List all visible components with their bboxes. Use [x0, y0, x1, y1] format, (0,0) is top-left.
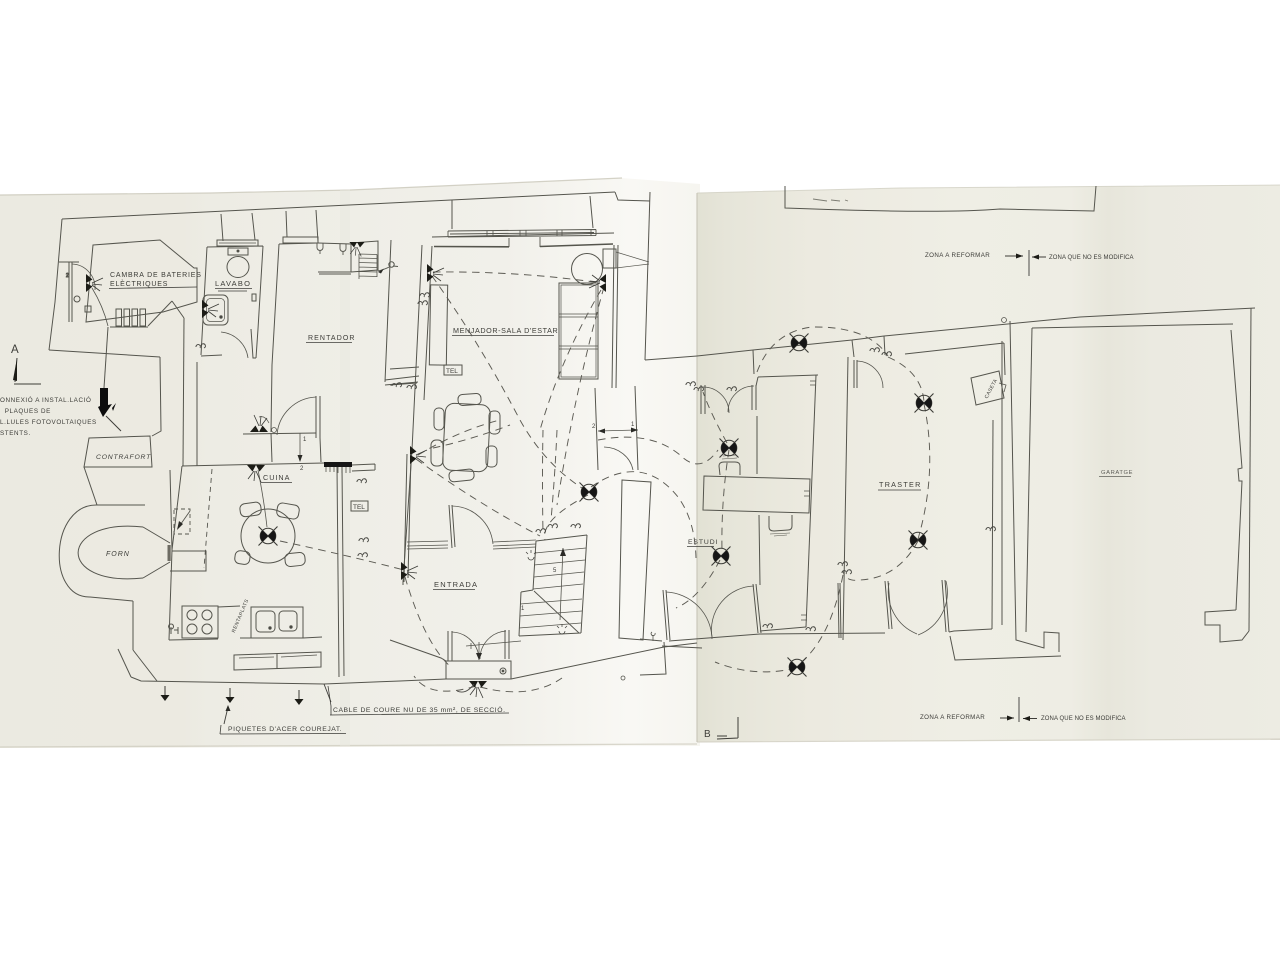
svg-text:ZONA QUE NO ES MODIFICA: ZONA QUE NO ES MODIFICA: [1041, 716, 1126, 722]
svg-text:CUINA: CUINA: [263, 473, 290, 482]
svg-text:GARATGE: GARATGE: [1101, 470, 1133, 476]
svg-text:A: A: [11, 344, 20, 356]
svg-text:ZONA A REFORMAR: ZONA A REFORMAR: [920, 714, 985, 721]
svg-text:PLAQUES DE: PLAQUES DE: [0, 408, 51, 415]
svg-text:PIQUETES D'ACER COUREJAT.: PIQUETES D'ACER COUREJAT.: [228, 726, 342, 733]
svg-text:TRASTER: TRASTER: [879, 480, 922, 489]
svg-text:B: B: [704, 729, 711, 740]
svg-text:CAMBRA DE BATERIES: CAMBRA DE BATERIES: [110, 272, 202, 279]
svg-text:LAVABO: LAVABO: [215, 279, 251, 288]
svg-text:ONNEXIÓ A INSTAL.LACIÓ: ONNEXIÓ A INSTAL.LACIÓ: [0, 395, 91, 404]
svg-text:ESTUDI: ESTUDI: [688, 539, 718, 546]
svg-text:RENTADOR: RENTADOR: [308, 335, 356, 342]
svg-text:2: 2: [66, 273, 69, 279]
svg-text:FORN: FORN: [106, 551, 130, 558]
svg-text:TEL: TEL: [353, 504, 365, 511]
svg-text:ZONA A REFORMAR: ZONA A REFORMAR: [925, 252, 990, 259]
svg-text:L.LULES FOTOVOLTAIQUES: L.LULES FOTOVOLTAIQUES: [0, 419, 97, 426]
svg-text:ELÈCTRIQUES: ELÈCTRIQUES: [110, 279, 168, 288]
svg-text:CABLE DE COURE NU DE 35 mm², D: CABLE DE COURE NU DE 35 mm², DE SECCIÓ.: [333, 705, 506, 714]
svg-text:STENTS.: STENTS.: [0, 430, 31, 437]
svg-text:TEL: TEL: [446, 368, 458, 375]
svg-text:CONTRAFORT: CONTRAFORT: [96, 454, 151, 461]
svg-text:ENTRADA: ENTRADA: [434, 580, 478, 589]
svg-text:ZONA QUE NO ES MODIFICA: ZONA QUE NO ES MODIFICA: [1049, 255, 1134, 261]
